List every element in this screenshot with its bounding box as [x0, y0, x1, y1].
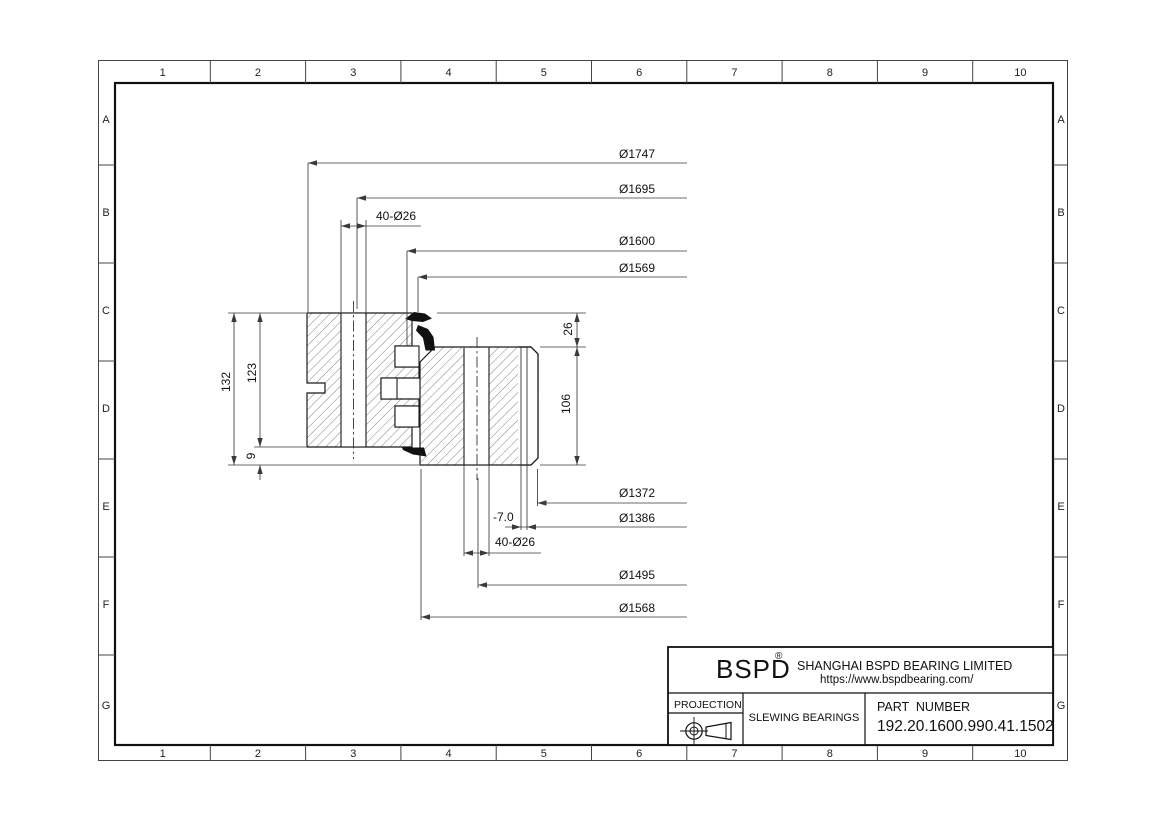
dim-label-bolt-circle-1695: Ø1695 — [619, 182, 655, 196]
grid-column-label: 9 — [910, 66, 940, 80]
grid-column-label: 10 — [1005, 66, 1035, 80]
dim-label-height-9: 9 — [244, 448, 258, 464]
grid-column-label: 2 — [243, 747, 273, 761]
drawing-sheet: Ø1747 Ø1695 40-Ø26 Ø1600 Ø1569 Ø1372 -7.… — [0, 0, 1170, 827]
grid-column-label: 1 — [148, 747, 178, 761]
part-number-label: PART NUMBER — [877, 700, 970, 714]
grid-row-label: B — [99, 206, 113, 220]
dim-label-1568: Ø1568 — [619, 601, 655, 615]
projection-label: PROJECTION — [674, 699, 742, 711]
bearing-cross-section — [307, 301, 538, 480]
grid-column-label: 6 — [624, 747, 654, 761]
grid-row-label: B — [1054, 206, 1068, 220]
dim-label-raceway-1600: Ø1600 — [619, 234, 655, 248]
roller-middle — [381, 378, 397, 399]
dim-label-bottom-bolt-holes: 40-Ø26 — [495, 535, 535, 549]
grid-column-label: 3 — [338, 66, 368, 80]
dim-label-bore-1372: Ø1372 — [619, 486, 655, 500]
dim-label-height-26: 26 — [561, 317, 575, 341]
grid-column-label: 10 — [1005, 747, 1035, 761]
grid-column-label: 2 — [243, 66, 273, 80]
roller-top — [395, 346, 419, 367]
part-number-value: 192.20.1600.990.41.1502 — [877, 718, 1054, 736]
grid-column-label: 1 — [148, 66, 178, 80]
grid-row-label: F — [1054, 598, 1068, 612]
dim-label-top-bolt-holes: 40-Ø26 — [376, 209, 416, 223]
dim-label-bolt-circle-1495: Ø1495 — [619, 568, 655, 582]
grid-row-label: C — [1054, 304, 1068, 318]
grid-row-label: E — [99, 500, 113, 514]
grid-column-label: 5 — [529, 66, 559, 80]
registered-trademark-icon: ® — [775, 651, 782, 662]
dim-label-height-132: 132 — [219, 367, 233, 397]
grid-row-label: C — [99, 304, 113, 318]
roller-bottom — [395, 406, 419, 427]
dim-label-height-123: 123 — [245, 358, 259, 388]
grid-column-label: 7 — [719, 66, 749, 80]
grid-row-label: G — [1054, 699, 1068, 713]
dim-label-od-1747: Ø1747 — [619, 147, 655, 161]
grid-column-label: 4 — [434, 66, 464, 80]
grid-row-label: E — [1054, 500, 1068, 514]
grid-column-label: 3 — [338, 747, 368, 761]
grid-row-label: A — [1054, 113, 1068, 127]
grid-row-label: D — [1054, 402, 1068, 416]
grid-row-label: A — [99, 113, 113, 127]
bottom-seal — [402, 448, 427, 457]
dim-label-1569: Ø1569 — [619, 261, 655, 275]
grid-column-label: 9 — [910, 747, 940, 761]
grid-column-label: 4 — [434, 747, 464, 761]
grid-column-label: 7 — [719, 747, 749, 761]
dim-label-height-106: 106 — [559, 389, 573, 419]
product-type-label: SLEWING BEARINGS — [743, 712, 865, 724]
grid-column-label: 8 — [815, 66, 845, 80]
technical-drawing-svg — [0, 0, 1170, 827]
grid-column-label: 6 — [624, 66, 654, 80]
dim-label-gear-1386: Ø1386 — [619, 511, 655, 525]
grid-column-label: 8 — [815, 747, 845, 761]
company-name: SHANGHAI BSPD BEARING LIMITED — [797, 659, 1012, 673]
dim-label-gear-offset: -7.0 — [493, 510, 514, 524]
grid-column-label: 5 — [529, 747, 559, 761]
company-website-link[interactable]: https://www.bspdbearing.com/ — [820, 674, 973, 686]
grid-row-label: D — [99, 402, 113, 416]
grid-row-label: F — [99, 598, 113, 612]
grid-row-label: G — [99, 699, 113, 713]
